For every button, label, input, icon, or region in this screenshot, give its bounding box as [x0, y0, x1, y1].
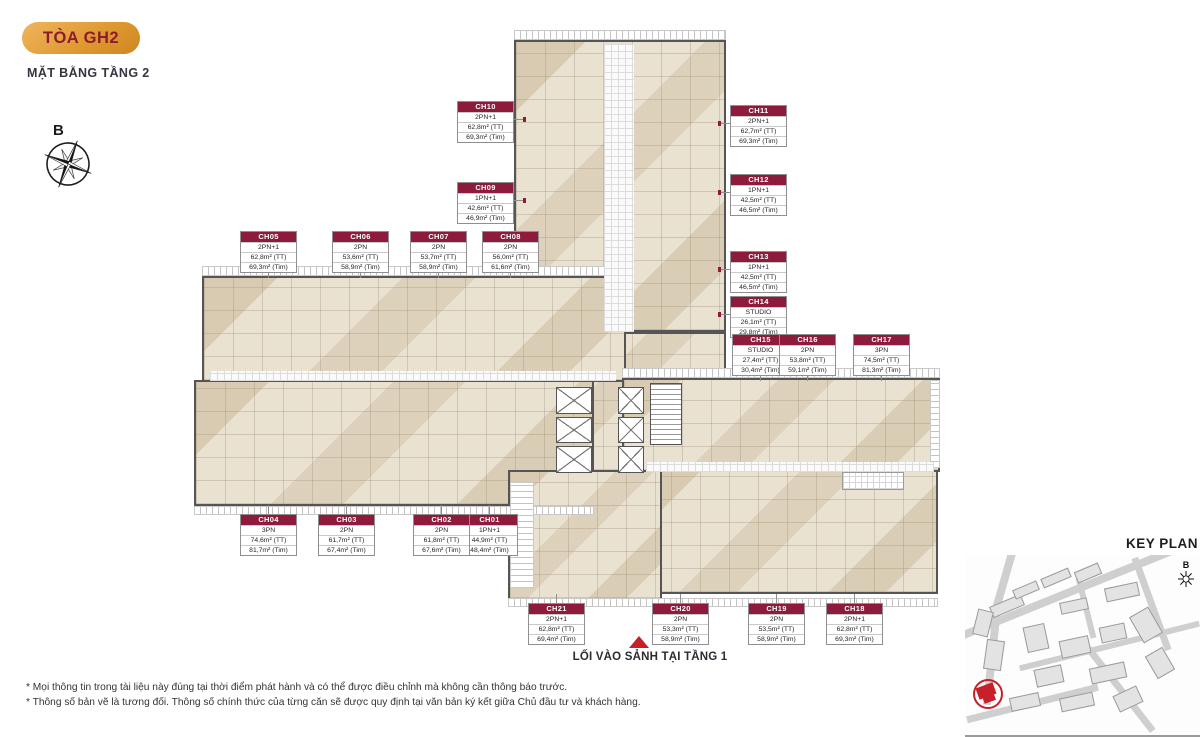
unit-connector-line	[721, 314, 730, 315]
unit-area-tim: 69,3m² (Tim)	[827, 634, 882, 644]
unit-type: 2PN	[749, 614, 804, 624]
corridor-right	[646, 462, 934, 472]
keyplan-compass-north-label: B	[1176, 560, 1196, 570]
unit-area-tim: 58,9m² (Tim)	[653, 634, 708, 644]
keyplan-highlight-circle	[973, 679, 1003, 709]
unit-label-CH03: CH032PN61,7m² (TT)67,4m² (Tim)	[318, 514, 375, 556]
unit-code: CH11	[731, 106, 786, 116]
unit-type: 2PN	[333, 242, 388, 252]
unit-label-CH13: CH131PN+142,5m² (TT)46,5m² (Tim)	[730, 251, 787, 293]
unit-connector-line	[268, 505, 269, 514]
keyplan-building	[1023, 623, 1050, 653]
unit-connector-line	[721, 192, 730, 193]
unit-area-tt: 61,7m² (TT)	[319, 535, 374, 545]
unit-type: 2PN	[653, 614, 708, 624]
unit-label-CH20: CH202PN53,3m² (TT)58,9m² (Tim)	[652, 603, 709, 645]
unit-area-tim: 69,3m² (Tim)	[731, 136, 786, 146]
unit-type: 3PN	[854, 345, 909, 355]
unit-code: CH07	[411, 232, 466, 242]
unit-area-tt: 53,6m² (TT)	[333, 252, 388, 262]
unit-type: 1PN+1	[731, 262, 786, 272]
unit-code: CH13	[731, 252, 786, 262]
unit-label-CH04: CH043PN74,6m² (TT)81,7m² (Tim)	[240, 514, 297, 556]
unit-area-tim: 58,9m² (Tim)	[749, 634, 804, 644]
unit-area-tt: 74,6m² (TT)	[241, 535, 296, 545]
unit-area-tt: 61,8m² (TT)	[414, 535, 469, 545]
unit-area-tt: 42,5m² (TT)	[731, 272, 786, 282]
unit-type: 2PN	[483, 242, 538, 252]
unit-code: CH02	[414, 515, 469, 525]
unit-area-tt: 62,8m² (TT)	[241, 252, 296, 262]
keyplan-building	[1012, 580, 1040, 599]
unit-code: CH06	[333, 232, 388, 242]
unit-connector-arrow	[718, 267, 721, 272]
unit-type: 2PN	[780, 345, 835, 355]
unit-code: CH19	[749, 604, 804, 614]
unit-area-tt: 53,8m² (TT)	[780, 355, 835, 365]
keyplan-building	[1033, 664, 1064, 687]
unit-label-CH14: CH14STUDIO26,1m² (TT)29,8m² (Tim)	[730, 296, 787, 338]
unit-label-CH09: CH091PN+142,6m² (TT)46,9m² (Tim)	[457, 182, 514, 224]
keyplan-title: KEY PLAN	[1040, 536, 1198, 551]
unit-area-tim: 58,9m² (Tim)	[411, 262, 466, 272]
entrance-arrow-icon	[629, 636, 649, 648]
floorplan-page: TÒA GH2 MẶT BẰNG TẦNG 2 B CH0	[0, 0, 1200, 735]
unit-area-tim: 59,1m² (Tim)	[780, 365, 835, 375]
unit-type: 2PN+1	[529, 614, 584, 624]
keyplan-compass-rose-icon	[1177, 570, 1195, 588]
lobby-tile-area	[842, 472, 904, 490]
unit-area-tt: 44,9m² (TT)	[462, 535, 517, 545]
footnote-line-1: * Mọi thông tin trong tài liệu này đúng …	[26, 681, 641, 696]
unit-area-tim: 46,5m² (Tim)	[731, 282, 786, 292]
unit-area-tt: 53,5m² (TT)	[749, 624, 804, 634]
unit-connector-arrow	[718, 121, 721, 126]
elevator-icon	[618, 446, 644, 473]
unit-code: CH09	[458, 183, 513, 193]
unit-area-tim: 61,6m² (Tim)	[483, 262, 538, 272]
unit-connector-arrow	[718, 190, 721, 195]
unit-area-tim: 48,4m² (Tim)	[462, 545, 517, 555]
unit-code: CH14	[731, 297, 786, 307]
unit-area-tt: 62,8m² (TT)	[529, 624, 584, 634]
unit-connector-line	[680, 594, 681, 603]
keyplan-building	[1058, 635, 1091, 659]
unit-type: 2PN+1	[827, 614, 882, 624]
unit-label-CH18: CH182PN+162,8m² (TT)69,3m² (Tim)	[826, 603, 883, 645]
unit-connector-line	[441, 505, 442, 514]
unit-area-tim: 67,6m² (Tim)	[414, 545, 469, 555]
keyplan-building	[1145, 647, 1175, 680]
unit-area-tim: 67,4m² (Tim)	[319, 545, 374, 555]
unit-connector-line	[514, 119, 523, 120]
keyplan-compass: B	[1176, 560, 1196, 593]
elevator-icon	[556, 446, 592, 473]
balcony-hatch	[930, 380, 940, 468]
unit-code: CH08	[483, 232, 538, 242]
unit-type: 3PN	[241, 525, 296, 535]
unit-label-CH06: CH062PN53,6m² (TT)58,9m² (Tim)	[332, 231, 389, 273]
entrance-label: LỐI VÀO SẢNH TẠI TẦNG 1	[545, 651, 755, 663]
unit-connector-arrow	[523, 198, 526, 203]
footnotes: * Mọi thông tin trong tài liệu này đúng …	[26, 681, 641, 710]
unit-area-tt: 53,7m² (TT)	[411, 252, 466, 262]
elevator-icon	[556, 387, 592, 414]
unit-type: 2PN+1	[458, 112, 513, 122]
unit-area-tt: 42,5m² (TT)	[731, 195, 786, 205]
unit-label-CH21: CH212PN+162,8m² (TT)69,4m² (Tim)	[528, 603, 585, 645]
unit-area-tim: 81,3m² (Tim)	[854, 365, 909, 375]
unit-code: CH04	[241, 515, 296, 525]
keyplan-building	[983, 639, 1005, 671]
unit-area-tt: 62,8m² (TT)	[458, 122, 513, 132]
unit-code: CH18	[827, 604, 882, 614]
unit-label-CH05: CH052PN+162,8m² (TT)69,3m² (Tim)	[240, 231, 297, 273]
corridor-tower	[604, 44, 634, 332]
corridor-left	[210, 371, 616, 381]
unit-code: CH21	[529, 604, 584, 614]
unit-code: CH16	[780, 335, 835, 345]
stairs-icon	[650, 383, 682, 445]
unit-type: STUDIO	[731, 307, 786, 317]
keyplan-building	[1089, 661, 1128, 684]
unit-code: CH12	[731, 175, 786, 185]
unit-area-tt: 62,8m² (TT)	[827, 624, 882, 634]
unit-area-tt: 74,5m² (TT)	[854, 355, 909, 365]
unit-label-CH16: CH162PN53,8m² (TT)59,1m² (Tim)	[779, 334, 836, 376]
unit-label-CH02: CH022PN61,8m² (TT)67,6m² (Tim)	[413, 514, 470, 556]
unit-label-CH11: CH112PN+162,7m² (TT)69,3m² (Tim)	[730, 105, 787, 147]
elevator-bank-1	[556, 387, 592, 473]
elevator-icon	[618, 417, 644, 444]
unit-connector-line	[346, 505, 347, 514]
elevator-bank-2	[618, 387, 644, 473]
unit-label-CH07: CH072PN53,7m² (TT)58,9m² (Tim)	[410, 231, 467, 273]
unit-code: CH20	[653, 604, 708, 614]
unit-area-tim: 81,7m² (Tim)	[241, 545, 296, 555]
unit-label-CH12: CH121PN+142,5m² (TT)46,5m² (Tim)	[730, 174, 787, 216]
unit-type: 1PN+1	[731, 185, 786, 195]
balcony-hatch	[514, 30, 726, 40]
unit-code: CH10	[458, 102, 513, 112]
unit-area-tt: 53,3m² (TT)	[653, 624, 708, 634]
unit-area-tim: 58,9m² (Tim)	[333, 262, 388, 272]
unit-code: CH05	[241, 232, 296, 242]
unit-area-tim: 69,4m² (Tim)	[529, 634, 584, 644]
unit-label-CH19: CH192PN53,5m² (TT)58,9m² (Tim)	[748, 603, 805, 645]
unit-code: CH17	[854, 335, 909, 345]
unit-label-CH10: CH102PN+162,8m² (TT)69,3m² (Tim)	[457, 101, 514, 143]
unit-code: CH01	[462, 515, 517, 525]
unit-type: 2PN+1	[241, 242, 296, 252]
unit-connector-line	[721, 123, 730, 124]
elevator-icon	[556, 417, 592, 444]
keyplan-building	[1040, 568, 1072, 589]
unit-area-tt: 26,1m² (TT)	[731, 317, 786, 327]
unit-type: 2PN	[411, 242, 466, 252]
unit-connector-line	[489, 505, 490, 514]
wing-left-upper	[202, 276, 626, 382]
unit-area-tt: 56,0m² (TT)	[483, 252, 538, 262]
unit-type: 2PN+1	[731, 116, 786, 126]
keyplan-building	[1009, 692, 1041, 712]
unit-type: 2PN	[319, 525, 374, 535]
unit-connector-line	[514, 200, 523, 201]
unit-type: 2PN	[414, 525, 469, 535]
unit-area-tim: 69,3m² (Tim)	[458, 132, 513, 142]
unit-area-tt: 42,6m² (TT)	[458, 203, 513, 213]
unit-connector-arrow	[718, 312, 721, 317]
unit-type: 1PN+1	[458, 193, 513, 203]
footnote-line-2: * Thông số bản vẽ là tương đối. Thông số…	[26, 696, 641, 711]
unit-area-tim: 69,3m² (Tim)	[241, 262, 296, 272]
unit-area-tim: 46,5m² (Tim)	[731, 205, 786, 215]
unit-connector-line	[721, 269, 730, 270]
unit-connector-line	[556, 594, 557, 603]
unit-type: 1PN+1	[462, 525, 517, 535]
unit-area-tim: 46,9m² (Tim)	[458, 213, 513, 223]
elevator-icon	[618, 387, 644, 414]
keyplan-building	[1104, 582, 1140, 603]
unit-area-tt: 62,7m² (TT)	[731, 126, 786, 136]
unit-connector-line	[776, 594, 777, 603]
unit-code: CH03	[319, 515, 374, 525]
keyplan-map: B	[965, 555, 1200, 737]
unit-label-CH17: CH173PN74,5m² (TT)81,3m² (Tim)	[853, 334, 910, 376]
unit-connector-arrow	[523, 117, 526, 122]
unit-connector-line	[854, 594, 855, 603]
unit-label-CH08: CH082PN56,0m² (TT)61,6m² (Tim)	[482, 231, 539, 273]
